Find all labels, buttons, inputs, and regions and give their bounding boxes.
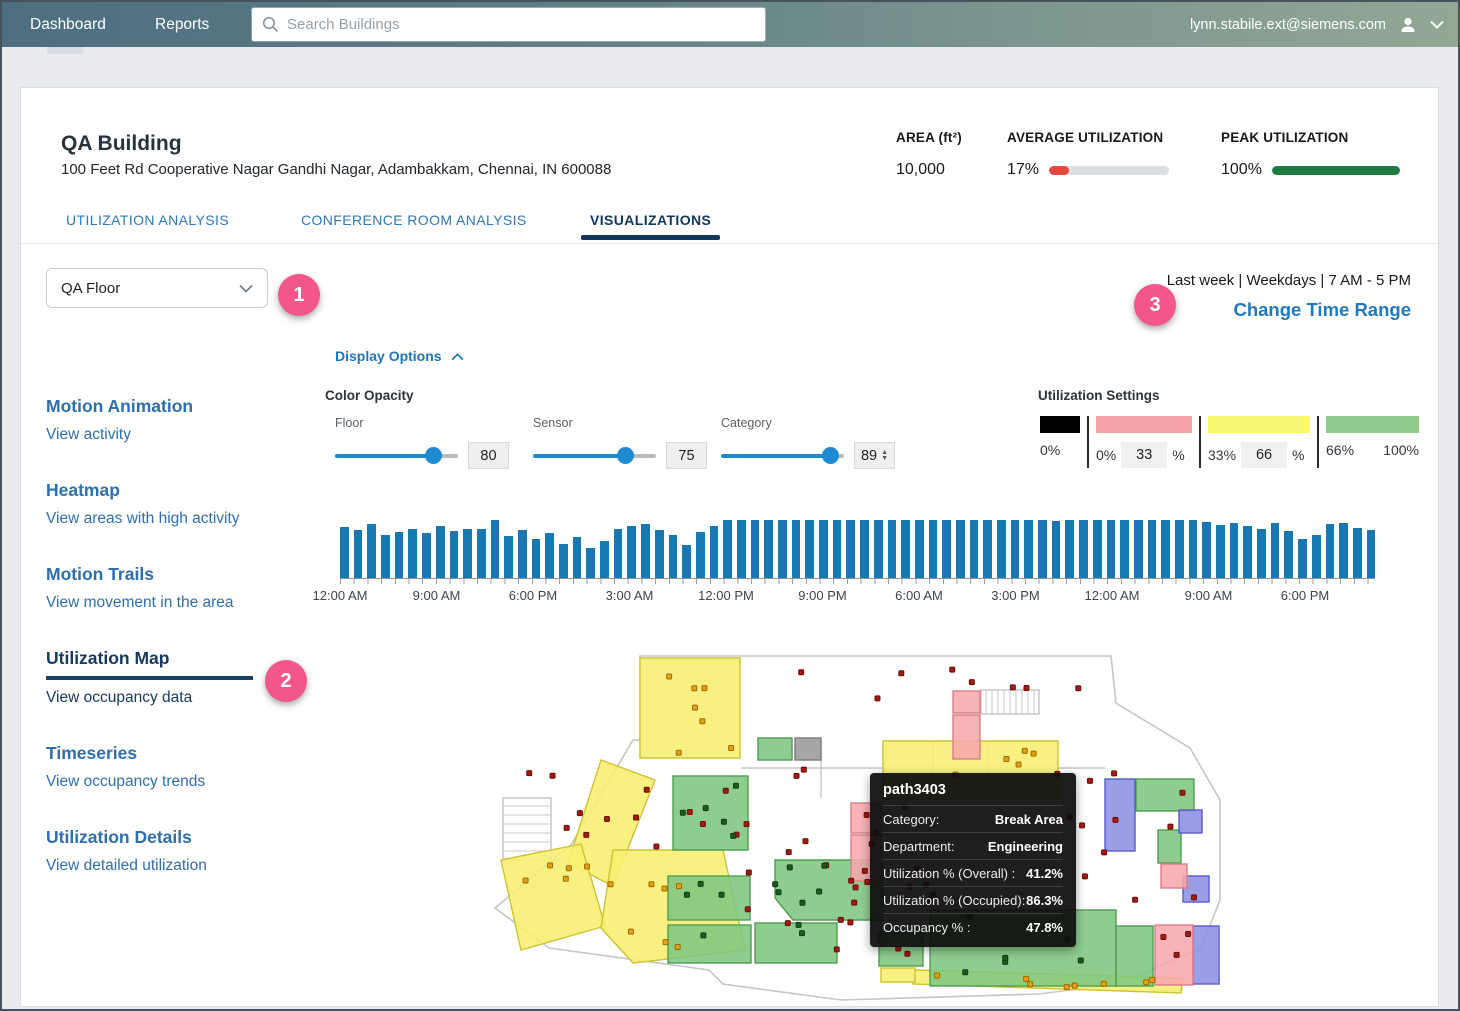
stat-average-utilization: AVERAGE UTILIZATION 17% [1007,130,1169,179]
sensor-dot [745,907,750,912]
timeline-bar [395,532,404,579]
sensor-dot [548,863,553,868]
sensor-dot [785,921,790,926]
util-seg0-start: 0% [1040,442,1060,458]
tooltip-value: Engineering [988,839,1063,854]
utilization-settings-title: Utilization Settings [1038,388,1160,403]
sensor-dot [662,886,667,891]
sensor-dot [628,929,633,934]
sensor-dot [729,746,734,751]
sensor-dot [800,900,805,905]
sensor-dot [799,670,804,675]
timeline-bar [1079,520,1088,578]
util-seg1-start: 0% [1096,447,1116,463]
sensor-dot [1004,757,1009,762]
floor-select[interactable]: QA Floor [46,268,268,308]
room-blue[interactable] [1105,779,1135,851]
timeline-bar [491,520,500,579]
util-swatch-black [1040,416,1080,433]
timeline-bar [1243,526,1252,578]
timeline-bar [1202,522,1211,578]
timeline-bar [381,535,390,579]
util-seg1-suffix: % [1172,447,1184,463]
timeline-bar [1093,520,1102,579]
util-swatch-green [1326,416,1419,433]
timeline-bar [682,545,691,578]
sensor-dot [1161,935,1166,940]
timeline-bar [1107,520,1116,579]
timeline-bar [1148,520,1157,579]
number-spinner-icon[interactable]: ▲▼ [881,450,888,462]
display-options-toggle[interactable]: Display Options [335,348,464,364]
sensor-dot [744,822,749,827]
util-swatch-red [1096,416,1192,433]
timeline-bar [1230,523,1239,578]
building-card: QA Building 100 Feet Rd Cooperative Naga… [20,87,1439,1007]
slider-floor-thumb[interactable] [425,447,442,464]
timeline-bar [1052,521,1061,578]
sensor-dot [862,868,867,873]
sidebar-item-motion-animation[interactable]: Motion AnimationView activity [46,396,316,444]
sensor-dot [963,970,968,975]
util-segment-mid: 33% 66 % [1199,416,1310,468]
timeline-bar [1216,525,1225,578]
floor-select-value: QA Floor [61,280,239,297]
tooltip-value: 41.2% [1026,866,1063,881]
sensor-dot [1082,874,1087,879]
sensor-dot [794,773,799,778]
timeline-bar [764,520,773,579]
stat-area: AREA (ft²) 10,000 [896,130,962,179]
timeline-bar [874,520,883,578]
timeline-bar [1284,531,1293,578]
timeline-tick-label: 6:00 AM [895,588,943,603]
sensor-dot [803,839,808,844]
slider-category-number: 89 [861,448,877,464]
tooltip-value: 86.3% [1026,893,1063,908]
room-green[interactable] [668,876,750,920]
timeline-bar [792,520,801,579]
sensor-dot [723,788,728,793]
tooltip-row: Occupancy % :47.8% [883,914,1063,940]
timeline-bar [997,520,1006,579]
timeline-chart: 12:00 AM9:00 AM6:00 PM3:00 AM12:00 PM9:0… [340,518,1375,606]
step-badge-1: 1 [278,274,320,316]
slider-sensor-thumb[interactable] [617,447,634,464]
timeline-bar [929,520,938,578]
sensor-dot [905,951,910,956]
search-box[interactable] [252,8,765,41]
user-icon[interactable] [1398,15,1418,35]
tab-utilization-analysis[interactable]: UTILIZATION ANALYSIS [66,212,229,228]
timeline-bar [1134,520,1143,579]
room-green[interactable] [668,925,751,963]
slider-sensor-value[interactable]: 75 [666,442,707,469]
sensor-dot [1112,771,1117,776]
sensor-dot [1076,686,1081,691]
timeline-bar [1353,528,1362,578]
sensor-dot [702,686,707,691]
timeline-bar [915,520,924,579]
utilization-settings: 0% 0% 33 % 33% 66 % [1040,416,1419,468]
sensor-dot [527,771,532,776]
sensor-dot [731,833,736,838]
timeline-tick-label: 3:00 AM [606,588,654,603]
room-yellow[interactable] [640,658,740,758]
room-green[interactable] [1136,779,1194,811]
sensor-dot [1101,981,1106,986]
util-swatch-yellow [1208,416,1310,433]
sensor-dot [675,945,680,950]
timeline-bar [942,520,951,579]
stat-avg-label: AVERAGE UTILIZATION [1007,130,1169,145]
util-segment-high: 66% 100% [1317,416,1419,468]
sidebar-item-subtitle: View activity [46,426,316,444]
timeline-bar [422,533,431,578]
sensor-dot [776,890,781,895]
timeline-bar [436,526,445,579]
timeline-bar [1065,520,1074,579]
sidebar-item-subtitle: View occupancy trends [46,773,316,791]
sensor-dot [773,882,778,887]
tooltip-row: Category:Break Area [883,806,1063,833]
sensor-dot [1064,985,1069,990]
timeline-tick-label: 6:00 PM [1281,588,1329,603]
room-green[interactable] [1158,830,1181,863]
tooltip-label: Utilization % (Occupied): [883,893,1025,908]
timeline-bar [778,520,787,578]
util-seg3-end: 100% [1383,442,1419,458]
timeline-bar [367,524,376,578]
sensor-dot [1028,982,1033,987]
util-seg1-input[interactable]: 33 [1121,442,1167,468]
timeline-bar [833,520,842,578]
sensor-dot [698,881,703,886]
tab-conference-room-analysis[interactable]: CONFERENCE ROOM ANALYSIS [301,212,527,228]
user-area: lynn.stabile.ext@siemens.com [1190,2,1444,47]
timeline-bar [477,529,486,579]
timeline-bar [819,520,828,579]
timeline-bar [1038,520,1047,579]
sidebar-item-title: Utilization Map [46,648,316,669]
sensor-dot [692,686,697,691]
sensor-dot [864,812,869,817]
timeline-tick-label: 12:00 AM [1085,588,1140,603]
sensor-dot [667,674,672,679]
sensor-dot [566,866,571,871]
timeline-bar [545,533,554,578]
sensor-dot [969,680,974,685]
color-opacity-label: Color Opacity [325,388,414,403]
sensor-dot [663,940,668,945]
sensor-dot [1133,897,1138,902]
sensor-dot [584,832,589,837]
tooltip-row: Utilization % (Overall) :41.2% [883,860,1063,887]
sensor-dot [1031,751,1036,756]
timeline-bar [504,536,513,578]
sensor-dot [852,900,857,905]
sensor-dot [644,787,649,792]
timeline-bar [1024,520,1033,578]
tooltip-label: Department: [883,839,955,854]
sensor-dot [1113,817,1118,822]
room-pink[interactable] [953,691,980,713]
timeline-bar [408,529,417,579]
timeline-bar [641,524,650,578]
sensor-dot [608,882,613,887]
timeline-bar [463,529,472,579]
room-blue[interactable] [1193,926,1219,984]
timeline-bar [846,520,855,579]
stat-area-value: 10,000 [896,161,945,179]
timeline-bar [983,520,992,579]
sensor-dot [703,806,708,811]
timeline-bar [1161,520,1170,578]
building-address: 100 Feet Rd Cooperative Nagar Gandhi Nag… [61,161,611,178]
timeline-tick-label: 9:00 AM [413,588,461,603]
timeline-bar [710,526,719,579]
timeline-bar [696,532,705,579]
tooltip-label: Category: [883,812,939,827]
floor-plan: path3403 Category:Break AreaDepartment:E… [483,648,1243,1008]
sensor-dot [796,922,801,927]
timeline-bar [450,531,459,578]
sensor-dot [950,667,955,672]
stat-peak-value: 100% [1221,161,1262,179]
sensor-dot [701,933,706,938]
sensor-dot [564,825,569,830]
timeline-bar [860,520,869,579]
tab-active-underline [581,235,720,240]
chevron-up-icon [451,353,464,361]
timeline-bar [751,520,760,579]
timeline-bar [805,520,814,579]
timeline-bar [1367,530,1376,578]
sensor-dot [676,750,681,755]
sensor-dot [1024,976,1029,981]
sensor-dot [1010,685,1015,690]
sensor-dot [523,878,528,883]
timeline-bar [669,535,678,579]
sensor-dot [817,889,822,894]
sensor-dot [838,917,843,922]
slider-category-thumb[interactable] [822,447,839,464]
sidebar-active-underline [46,676,253,680]
sensor-dot [721,819,726,824]
timeline-bar [627,526,636,579]
chevron-down-icon [239,284,253,293]
sidebar-item-subtitle: View occupancy data [46,689,316,707]
sensor-dot [822,863,827,868]
timeline-tick-label: 9:00 PM [798,588,846,603]
floor-plan-svg[interactable] [483,648,1243,1008]
timeline-tick-label: 12:00 AM [313,588,368,603]
timeline-bar [340,527,349,578]
timeline-bar [1257,529,1266,579]
util-seg2-start: 33% [1208,447,1236,463]
sensor-dot [719,892,724,897]
sidebar-item-utilization-map[interactable]: Utilization MapView occupancy data [46,648,316,707]
sensor-dot [935,973,940,978]
slider-sensor-label: Sensor [533,416,719,430]
sensor-dot [746,870,751,875]
tooltip-label: Utilization % (Overall) : [883,866,1015,881]
tooltip-value: Break Area [995,812,1063,827]
sidebar-item-subtitle: View detailed utilization [46,857,316,875]
time-range-text: Last week | Weekdays | 7 AM - 5 PM [1167,272,1411,289]
room-green[interactable] [755,923,837,963]
sensor-dot [1024,685,1029,690]
sensor-dot [676,884,681,889]
nav-tab-reports[interactable]: Reports [155,2,209,47]
sensor-dot [1072,983,1077,988]
room-blue[interactable] [1179,810,1202,833]
room-green[interactable] [1116,926,1153,986]
tooltip-label: Occupancy % : [883,920,970,935]
slider-sensor: Sensor 75 [533,416,719,466]
timeline-axis [340,578,1375,585]
sensor-dot [787,865,792,870]
timeline-bar [655,530,664,578]
sensor-dot [1080,823,1085,828]
sensor-dot [687,809,692,814]
sensor-dot [700,719,705,724]
sidebar-item-title: Motion Animation [46,396,316,417]
sensor-dot [680,810,685,815]
tooltip-value: 47.8% [1026,920,1063,935]
chevron-down-icon[interactable] [1430,20,1444,29]
sensor-dot [733,783,738,788]
user-email: lynn.stabile.ext@siemens.com [1190,17,1386,33]
sensor-dot [585,864,590,869]
sidebar-item-motion-trails[interactable]: Motion TrailsView movement in the area [46,564,316,612]
search-input[interactable] [287,16,755,33]
display-options-label: Display Options [335,348,442,364]
sensor-dot [577,811,582,816]
sidebar-item-timeseries[interactable]: TimeseriesView occupancy trends [46,743,316,791]
sensor-dot [1016,762,1021,767]
util-segment-black: 0% [1040,416,1080,468]
timeline-bar [1011,520,1020,579]
sensor-dot [684,892,689,897]
sidebar-item-title: Heatmap [46,480,316,501]
step-badge-3: 3 [1134,284,1176,326]
sensor-dot [848,920,853,925]
sensor-dot [649,882,654,887]
sensor-dot [1150,977,1155,982]
util-segment-low: 0% 33 % [1087,416,1192,468]
avg-utilization-bar [1049,166,1169,175]
timeline-bar [1189,520,1198,578]
sidebar-item-utilization-details[interactable]: Utilization DetailsView detailed utiliza… [46,827,316,875]
sensor-dot [1022,748,1027,753]
room-yellow[interactable] [881,968,915,982]
app-window: Dashboard Reports lynn.stabile.ext@sieme… [0,0,1460,1011]
change-time-range-link[interactable]: Change Time Range [1233,299,1411,321]
util-seg2-input[interactable]: 66 [1241,442,1287,468]
sensor-dot [604,817,609,822]
sensor-dot [875,696,880,701]
timeline-bar [1312,535,1321,579]
slider-floor-value[interactable]: 80 [468,442,509,469]
timeline-bar [1175,520,1184,579]
tab-visualizations[interactable]: VISUALIZATIONS [590,212,711,228]
room-pink[interactable] [953,715,980,759]
timeline-bar [600,541,609,579]
timeline-tick-label: 12:00 PM [698,588,754,603]
search-icon [262,16,279,33]
sensor-dot [1144,980,1149,985]
sensor-dot [1174,952,1179,957]
sensor-dot [563,876,568,881]
timeline-bar [1298,539,1307,578]
stat-peak-label: PEAK UTILIZATION [1221,130,1400,145]
header-divider [21,243,1438,244]
sensor-dot [1078,958,1083,963]
room-green[interactable] [758,738,792,760]
timeline-bar [1339,523,1348,579]
timeline-bar [1120,520,1129,578]
sensor-dot [700,821,705,826]
page-title: QA Building [61,132,182,156]
sensor-dot [654,844,659,849]
sidebar-item-heatmap[interactable]: HeatmapView areas with high activity [46,480,316,528]
tooltip-row: Utilization % (Occupied):86.3% [883,887,1063,914]
timeline-bar [970,520,979,578]
visualization-sidebar: Motion AnimationView activityHeatmapView… [46,396,316,911]
util-seg3-start: 66% [1326,442,1354,458]
timeline-bar [723,520,732,579]
sensor-dot [786,850,791,855]
timeline-bar [1271,523,1280,579]
timeline-bar [614,529,623,579]
nav-tab-dashboard[interactable]: Dashboard [30,2,106,47]
timeline-tick-label: 9:00 AM [1185,588,1233,603]
sensor-dot [1192,895,1197,900]
slider-floor: Floor 80 [335,416,521,466]
timeline-bar [737,520,746,578]
timeline-tick-labels: 12:00 AM9:00 AM6:00 PM3:00 AM12:00 PM9:0… [340,588,1375,606]
sensor-dot [1168,824,1173,829]
sensor-dot [799,931,804,936]
active-tab-indicator [47,47,83,54]
room-tooltip: path3403 Category:Break AreaDepartment:E… [870,773,1076,947]
sidebar-item-title: Utilization Details [46,827,316,848]
timeline-bar [888,520,897,579]
sensor-dot [1087,778,1092,783]
stat-area-label: AREA (ft²) [896,130,962,145]
slider-category-label: Category [721,416,907,430]
sidebar-item-title: Timeseries [46,743,316,764]
slider-category: Category 89 ▲▼ [721,416,907,466]
peak-utilization-bar [1272,166,1400,175]
room-gray[interactable] [795,738,821,760]
sensor-dot [801,767,806,772]
timeline-bar [956,520,965,579]
timeline-brush[interactable] [340,518,1375,578]
timeline-bar [573,537,582,578]
timeline-bar [532,539,541,578]
sensor-dot [1102,850,1107,855]
timeline-tick-label: 6:00 PM [509,588,557,603]
slider-floor-label: Floor [335,416,521,430]
sensor-dot [1180,790,1185,795]
sensor-dot [1003,955,1008,960]
slider-category-value[interactable]: 89 ▲▼ [854,442,895,469]
timeline-bar [354,530,363,578]
room-pink[interactable] [1161,864,1187,888]
sensor-dot [1186,931,1191,936]
